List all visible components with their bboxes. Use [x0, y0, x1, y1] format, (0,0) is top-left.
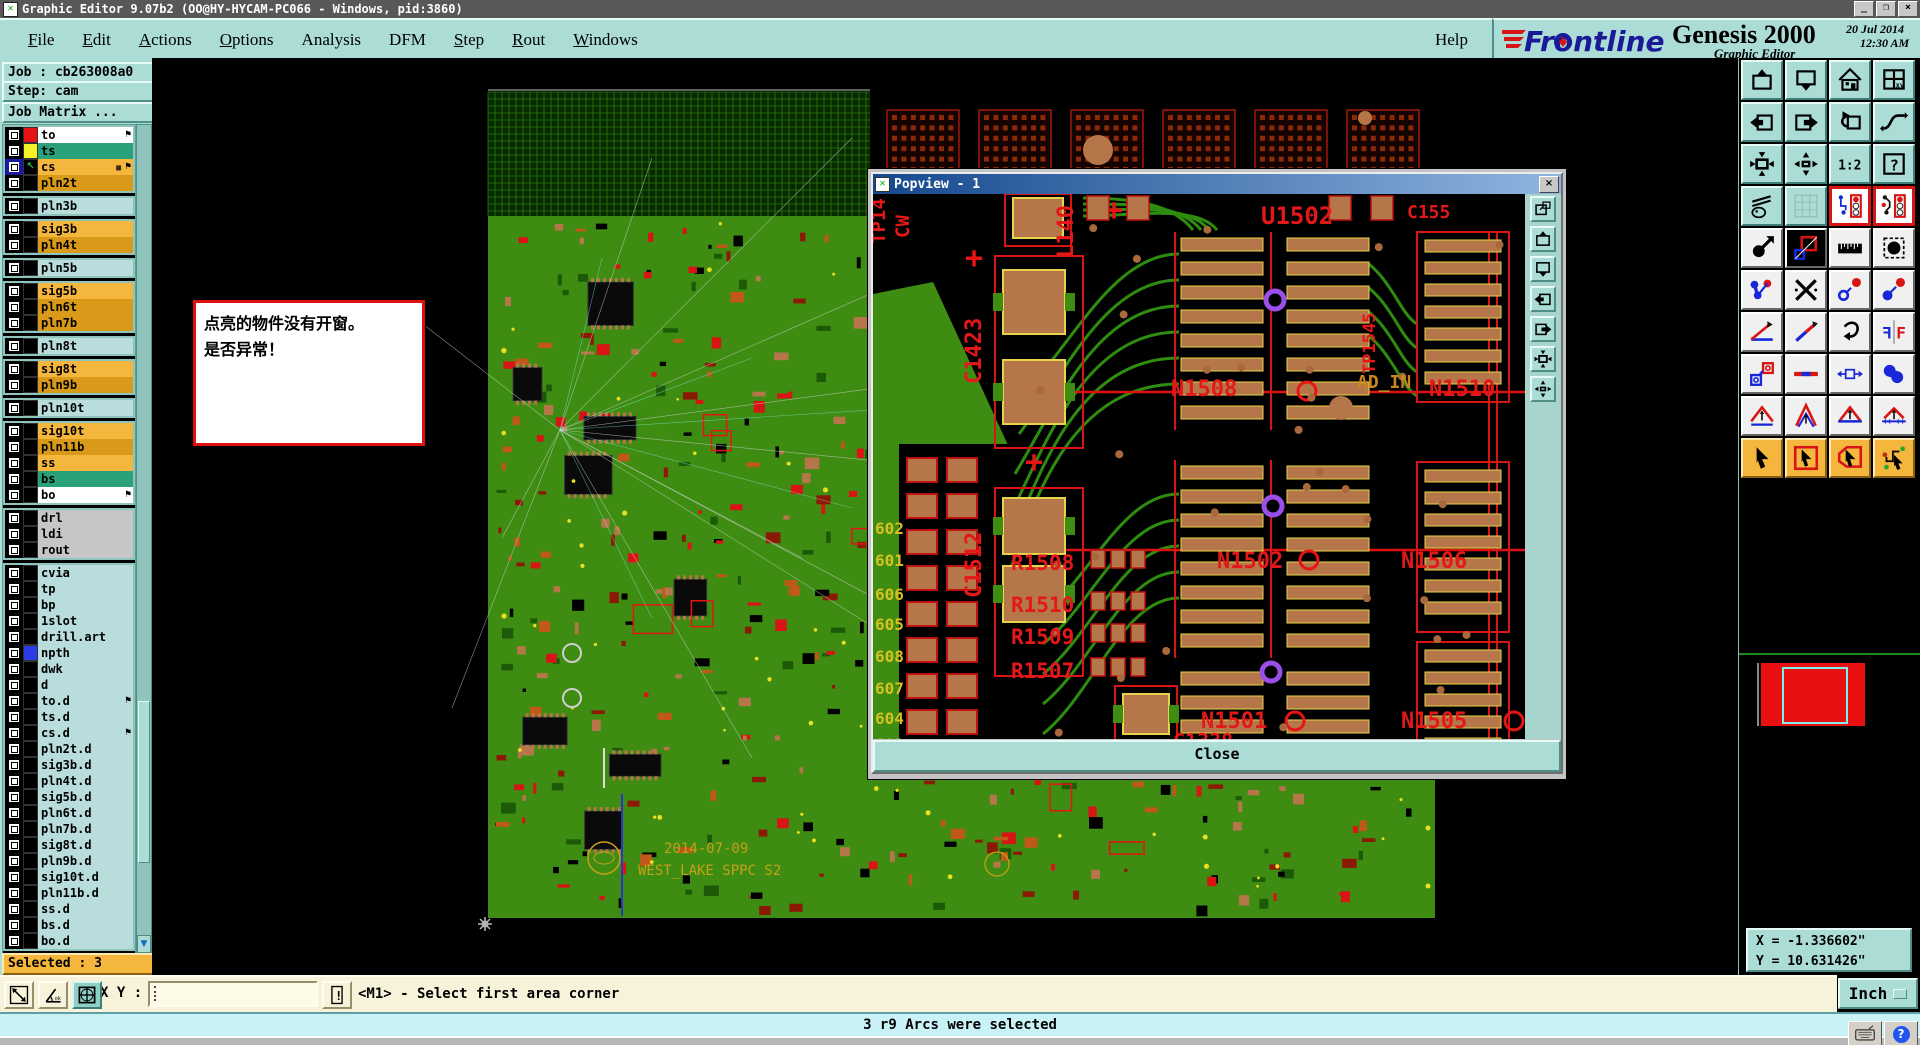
layer-color-swatch[interactable] — [23, 853, 38, 869]
tool-grid-toggle-button[interactable] — [1785, 186, 1827, 226]
xy-input[interactable] — [148, 981, 318, 1007]
layer-checkbox[interactable] — [5, 159, 23, 175]
layer-row-pln11b.d[interactable]: pln11b.d — [5, 885, 133, 901]
layer-row-pln4t[interactable]: pln4t — [5, 237, 133, 253]
layer-row-sig10t[interactable]: sig10t — [5, 423, 133, 439]
layer-row-to.d[interactable]: to.d⚑ — [5, 693, 133, 709]
layer-checkbox[interactable] — [5, 510, 23, 526]
cursor-coordinates: X = -1.336602" Y = 10.631426" — [1746, 928, 1912, 972]
layer-checkbox[interactable] — [5, 143, 23, 159]
layer-color-swatch[interactable] — [23, 127, 38, 143]
layer-name[interactable]: cvia — [38, 565, 133, 581]
layer-checkbox[interactable] — [5, 741, 23, 757]
popview-close-button[interactable]: Close — [873, 740, 1561, 772]
layer-name[interactable]: pln2t — [38, 175, 133, 191]
layer-color-swatch[interactable] — [23, 725, 38, 741]
layer-name[interactable]: bs — [38, 471, 133, 487]
restore-button[interactable]: ❐ — [1876, 1, 1896, 17]
measure-diag-button[interactable] — [4, 981, 34, 1009]
layer-color-swatch[interactable] — [23, 789, 38, 805]
layer-name[interactable]: drl — [38, 510, 133, 526]
layer-name[interactable]: pln7b.d — [38, 821, 133, 837]
layer-name[interactable]: sig3b — [38, 221, 133, 237]
layer-color-swatch[interactable] — [23, 757, 38, 773]
layer-list: to⚑ts↖cs▦⚑pln2tpln3bsig3bpln4tpln5bsig5b… — [2, 124, 136, 954]
layer-row-sig10t.d[interactable]: sig10t.d — [5, 869, 133, 885]
layer-color-swatch[interactable] — [23, 869, 38, 885]
tool-select-polygon-button[interactable] — [1829, 438, 1871, 478]
popview-window[interactable]: ✕ Popview - 1 × +++TP14CWC1423L140U1502C… — [867, 168, 1567, 780]
layer-color-swatch[interactable] — [23, 821, 38, 837]
layer-name[interactable]: pln10t — [38, 400, 133, 416]
popview-tool-zoom-out-fit-button[interactable] — [1530, 376, 1556, 402]
layer-name[interactable]: npth — [38, 645, 133, 661]
layer-checkbox[interactable] — [5, 581, 23, 597]
tool-join-shapes-button[interactable] — [1873, 354, 1915, 394]
layer-name[interactable]: bo⚑ — [38, 487, 133, 503]
measure-ang2-icon: ok — [42, 984, 64, 1006]
right-panel: xy1:2?FF X = -1.336602" Y = 10.631426" I… — [1738, 58, 1920, 1045]
layer-checkbox[interactable] — [5, 455, 23, 471]
tool-measure-ruler-button[interactable] — [1829, 228, 1871, 268]
layer-checkbox[interactable] — [5, 885, 23, 901]
tool-scale-1-2-button[interactable]: 1:2 — [1829, 144, 1871, 184]
layer-color-swatch[interactable] — [23, 885, 38, 901]
layer-color-swatch[interactable] — [23, 933, 38, 949]
menu-options[interactable]: Options — [220, 30, 274, 50]
tool-tools-setup-button[interactable] — [1741, 186, 1783, 226]
popview-tool-popout-button[interactable] — [1530, 196, 1556, 222]
layer-row-sig8t[interactable]: sig8t — [5, 361, 133, 377]
layer-name[interactable]: pln7b — [38, 315, 133, 331]
layer-name[interactable]: bp — [38, 597, 133, 613]
tool-move-layers-button[interactable] — [1785, 228, 1827, 268]
layer-row-to[interactable]: to⚑ — [5, 127, 133, 143]
arc-2-icon — [1792, 402, 1820, 430]
layer-row-bs.d[interactable]: bs.d — [5, 917, 133, 933]
tool-swap-small-button[interactable] — [1829, 270, 1871, 310]
menu-windows[interactable]: Windows — [573, 30, 638, 50]
tool-select-net-button[interactable] — [1873, 438, 1915, 478]
coord-y: Y = 10.631426" — [1756, 952, 1910, 972]
layer-checkbox[interactable] — [5, 237, 23, 253]
layer-checkbox[interactable] — [5, 917, 23, 933]
layer-color-swatch[interactable] — [23, 805, 38, 821]
layer-color-swatch[interactable] — [23, 510, 38, 526]
job-matrix-button[interactable]: Job Matrix ... — [2, 102, 158, 123]
layer-color-swatch[interactable] — [23, 455, 38, 471]
layer-row-ldi[interactable]: ldi — [5, 526, 133, 542]
layer-name[interactable]: drill.art — [38, 629, 133, 645]
layer-color-swatch[interactable] — [23, 237, 38, 253]
layer-checkbox[interactable] — [5, 127, 23, 143]
layer-row-cs[interactable]: ↖cs▦⚑ — [5, 159, 133, 175]
layer-row-ts.d[interactable]: ts.d — [5, 709, 133, 725]
layer-checkbox[interactable] — [5, 693, 23, 709]
layer-checkbox[interactable] — [5, 709, 23, 725]
layer-color-swatch[interactable]: ↖ — [23, 159, 38, 175]
layer-color-swatch[interactable] — [23, 773, 38, 789]
tool-arc-1-button[interactable] — [1741, 396, 1783, 436]
tool-select-cursor-button[interactable] — [1741, 438, 1783, 478]
popview-ref-label: U1502 — [1261, 202, 1333, 230]
layer-scrollbar[interactable]: ▼ — [136, 124, 152, 954]
layer-name[interactable]: ldi — [38, 526, 133, 542]
layer-checkbox[interactable] — [5, 565, 23, 581]
tool-arc-3-button[interactable] — [1829, 396, 1871, 436]
layer-name[interactable]: pln8t — [38, 338, 133, 354]
layer-name[interactable]: sig3b.d — [38, 757, 133, 773]
measure-ang2-button[interactable]: ok — [38, 981, 68, 1009]
menu-analysis[interactable]: Analysis — [302, 30, 362, 50]
tool-highlight-b-button[interactable] — [1873, 186, 1915, 226]
layer-color-swatch[interactable] — [23, 221, 38, 237]
copy-select-icon — [1748, 234, 1776, 262]
menu-rout[interactable]: Rout — [512, 30, 545, 50]
layer-row-pln2t[interactable]: pln2t — [5, 175, 133, 191]
layer-checkbox[interactable] — [5, 661, 23, 677]
popview-tool-view-up-button[interactable] — [1530, 226, 1556, 252]
layer-row-bo.d[interactable]: bo.d — [5, 933, 133, 949]
layer-checkbox[interactable] — [5, 725, 23, 741]
layer-row-d[interactable]: d — [5, 677, 133, 693]
layer-row-pln6t.d[interactable]: pln6t.d — [5, 805, 133, 821]
layer-name[interactable]: pln6t.d — [38, 805, 133, 821]
layer-row-pln7b[interactable]: pln7b — [5, 315, 133, 331]
layer-name[interactable]: pln3b — [38, 198, 133, 214]
layer-name[interactable]: ts.d — [38, 709, 133, 725]
layer-row-pln6t[interactable]: pln6t — [5, 299, 133, 315]
tool-select-pad-button[interactable] — [1873, 228, 1915, 268]
tool-slant-line-button[interactable] — [1785, 312, 1827, 352]
layer-checkbox[interactable] — [5, 260, 23, 276]
grid-win-button[interactable] — [72, 981, 102, 1009]
layer-checkbox[interactable] — [5, 221, 23, 237]
layer-flag-icon: ⚑ — [125, 725, 131, 741]
tool-angle-measure-button[interactable] — [1741, 312, 1783, 352]
layer-row-bp[interactable]: bp — [5, 597, 133, 613]
view-down-icon — [1792, 66, 1820, 94]
layer-color-swatch[interactable] — [23, 709, 38, 725]
layer-checkbox[interactable] — [5, 283, 23, 299]
layer-name[interactable]: sig8t.d — [38, 837, 133, 853]
popview-tool-pan-into-left-button[interactable] — [1530, 286, 1556, 312]
tool-view-up-button[interactable] — [1741, 60, 1783, 100]
layer-color-swatch[interactable] — [23, 423, 38, 439]
layer-color-swatch[interactable] — [23, 471, 38, 487]
tool-stretch-button[interactable] — [1829, 354, 1871, 394]
layer-row-pln10t[interactable]: pln10t — [5, 400, 133, 416]
layer-checkbox[interactable] — [5, 837, 23, 853]
menu-file[interactable]: File — [28, 30, 54, 50]
layer-color-swatch[interactable] — [23, 175, 38, 191]
layer-row-pln5b[interactable]: pln5b — [5, 260, 133, 276]
layer-checkbox[interactable] — [5, 377, 23, 393]
layer-name[interactable]: sig5b — [38, 283, 133, 299]
layer-checkbox[interactable] — [5, 773, 23, 789]
tool-delete-button[interactable] — [1785, 270, 1827, 310]
layer-group: sig3bpln4t — [3, 219, 135, 255]
tool-previous-view-button[interactable] — [1829, 102, 1871, 142]
layer-row-pln2t.d[interactable]: pln2t.d — [5, 741, 133, 757]
keyboard-tray-icon[interactable] — [1848, 1021, 1882, 1045]
layer-checkbox[interactable] — [5, 613, 23, 629]
layer-checkbox[interactable] — [5, 338, 23, 354]
layer-row-npth[interactable]: npth — [5, 645, 133, 661]
mirror-icon: FF — [1880, 318, 1908, 346]
layer-row-drill.art[interactable]: drill.art — [5, 629, 133, 645]
layer-row-tp[interactable]: tp — [5, 581, 133, 597]
layer-row-drl[interactable]: drl — [5, 510, 133, 526]
alert-button[interactable]: ! — [322, 981, 352, 1009]
popview-ref-label: R1507 — [1011, 659, 1074, 683]
layer-checkbox[interactable] — [5, 645, 23, 661]
popview-tool-pan-out-right-button[interactable] — [1530, 316, 1556, 342]
layer-checkbox[interactable] — [5, 487, 23, 503]
delete-icon — [1792, 276, 1820, 304]
layer-name[interactable]: tp — [38, 581, 133, 597]
layer-name[interactable]: ss.d — [38, 901, 133, 917]
layer-name[interactable]: sig10t.d — [38, 869, 133, 885]
layer-checkbox[interactable] — [5, 299, 23, 315]
layer-row-sig5b[interactable]: sig5b — [5, 283, 133, 299]
layer-name[interactable]: to.d⚑ — [38, 693, 133, 709]
layer-checkbox[interactable] — [5, 629, 23, 645]
layer-color-swatch[interactable] — [23, 198, 38, 214]
layer-name[interactable]: bo.d — [38, 933, 133, 949]
layer-name[interactable]: cs▦⚑ — [38, 159, 133, 175]
layer-color-swatch[interactable] — [23, 597, 38, 613]
layer-name[interactable]: pln6t — [38, 299, 133, 315]
layer-row-1slot[interactable]: 1slot — [5, 613, 133, 629]
layer-color-swatch[interactable] — [23, 143, 38, 159]
layer-name[interactable]: d — [38, 677, 133, 693]
layer-group: pln3b — [3, 196, 135, 216]
menu-help[interactable]: Help — [1435, 30, 1468, 50]
layer-name[interactable]: pln5b — [38, 260, 133, 276]
svg-text:!: ! — [335, 988, 343, 1003]
tool-highlight-a-button[interactable] — [1829, 186, 1871, 226]
tool-split-xy-button[interactable]: xy — [1873, 60, 1915, 100]
popview-ref-label: 608 — [875, 647, 904, 666]
tool-pan-into-left-button[interactable] — [1741, 102, 1783, 142]
menu-actions[interactable]: Actions — [139, 30, 192, 50]
menu-bar: FileEditActionsOptionsAnalysisDFMStepRou… — [0, 18, 1492, 62]
view-down-icon — [1533, 259, 1553, 279]
pan-out-right-icon — [1533, 319, 1553, 339]
minimize-button[interactable]: _ — [1854, 1, 1874, 17]
layer-row-ss.d[interactable]: ss.d — [5, 901, 133, 917]
layer-row-sig5b.d[interactable]: sig5b.d — [5, 789, 133, 805]
layer-color-swatch[interactable] — [23, 361, 38, 377]
layer-name[interactable]: sig8t — [38, 361, 133, 377]
layer-row-pln3b[interactable]: pln3b — [5, 198, 133, 214]
select-polygon-icon — [1836, 444, 1864, 472]
layer-checkbox[interactable] — [5, 757, 23, 773]
menu-edit[interactable]: Edit — [82, 30, 110, 50]
layer-row-bs[interactable]: bs — [5, 471, 133, 487]
scrollbar-thumb[interactable] — [138, 701, 150, 863]
layer-checkbox[interactable] — [5, 597, 23, 613]
help-tray-icon[interactable]: ? — [1884, 1021, 1918, 1045]
layer-row-pln11b[interactable]: pln11b — [5, 439, 133, 455]
tool-copy-pad-button[interactable] — [1741, 354, 1783, 394]
layer-name[interactable]: bs.d — [38, 917, 133, 933]
tool-home-view-button[interactable] — [1829, 60, 1871, 100]
layer-color-swatch[interactable] — [23, 837, 38, 853]
brand-panel: Frontline Genesis 2000 20 Jul 2014 12:30… — [1492, 18, 1920, 62]
layer-color-swatch[interactable] — [23, 677, 38, 693]
layer-row-pln9b.d[interactable]: pln9b.d — [5, 853, 133, 869]
tool-swap-large-button[interactable] — [1873, 270, 1915, 310]
layer-row-pln9b[interactable]: pln9b — [5, 377, 133, 393]
layer-color-swatch[interactable] — [23, 565, 38, 581]
graphic-editor-window: ✕ Graphic Editor 9.07b2 (OO@HY-HYCAM-PC0… — [0, 0, 1920, 1045]
layer-name[interactable]: sig5b.d — [38, 789, 133, 805]
tool-view-down-button[interactable] — [1785, 60, 1827, 100]
layer-name[interactable]: pln4t — [38, 237, 133, 253]
layer-color-swatch[interactable] — [23, 613, 38, 629]
popview-ref-label: N1510 — [1429, 377, 1495, 402]
warning-line1: 点亮的物件没有开窗。 — [204, 311, 414, 337]
layer-name[interactable]: pln2t.d — [38, 741, 133, 757]
layer-checkbox[interactable] — [5, 400, 23, 416]
units-dropdown[interactable]: Inch — [1838, 978, 1918, 1009]
layer-name[interactable]: ts — [38, 143, 133, 159]
tool-reroute-button[interactable] — [1829, 312, 1871, 352]
view-up-icon — [1748, 66, 1776, 94]
popview-ref-label: TP1545 — [1360, 313, 1380, 374]
layer-name[interactable]: to⚑ — [38, 127, 133, 143]
layer-checkbox[interactable] — [5, 439, 23, 455]
layer-name[interactable]: pln11b.d — [38, 885, 133, 901]
layer-color-swatch[interactable] — [23, 283, 38, 299]
layer-row-cs.d[interactable]: cs.d⚑ — [5, 725, 133, 741]
overview-viewport-box[interactable] — [1782, 667, 1848, 724]
layer-checkbox[interactable] — [5, 869, 23, 885]
layer-checkbox[interactable] — [5, 677, 23, 693]
layer-color-swatch[interactable] — [23, 338, 38, 354]
layer-name[interactable]: pln4t.d — [38, 773, 133, 789]
layer-checkbox[interactable] — [5, 901, 23, 917]
layer-checkbox[interactable] — [5, 805, 23, 821]
layer-checkbox[interactable] — [5, 471, 23, 487]
layer-checkbox[interactable] — [5, 789, 23, 805]
layer-color-swatch[interactable] — [23, 400, 38, 416]
title-bar[interactable]: ✕ Graphic Editor 9.07b2 (OO@HY-HYCAM-PC0… — [0, 0, 1920, 18]
layer-row-sig3b.d[interactable]: sig3b.d — [5, 757, 133, 773]
layer-color-swatch[interactable] — [23, 299, 38, 315]
tool-copy-select-button[interactable] — [1741, 228, 1783, 268]
layer-checkbox[interactable] — [5, 821, 23, 837]
tool-zoom-fit-button[interactable] — [1741, 144, 1783, 184]
layer-name[interactable]: pln9b.d — [38, 853, 133, 869]
sidebar: Job : cb263008a0 Step: cam Job Matrix ..… — [0, 58, 152, 975]
layer-checkbox[interactable] — [5, 198, 23, 214]
popview-pcb-view[interactable]: +++TP14CWC1423L140U1502C155TP1545AD_INN1… — [873, 194, 1525, 739]
layer-row-ss[interactable]: ss — [5, 455, 133, 471]
layer-name[interactable]: ss — [38, 455, 133, 471]
popview-title-bar[interactable]: ✕ Popview - 1 × — [873, 174, 1561, 194]
layer-row-ts[interactable]: ts — [5, 143, 133, 159]
overview-divider — [1739, 653, 1920, 655]
layer-color-swatch[interactable] — [23, 487, 38, 503]
popview-tool-view-down-button[interactable] — [1530, 256, 1556, 282]
scrollbar-down-arrow[interactable]: ▼ — [137, 935, 151, 953]
menu-step[interactable]: Step — [454, 30, 484, 50]
layer-color-swatch[interactable] — [23, 315, 38, 331]
layer-name[interactable]: sig10t — [38, 423, 133, 439]
tool-query-button[interactable]: ? — [1873, 144, 1915, 184]
menu-dfm[interactable]: DFM — [389, 30, 426, 50]
layer-row-cvia[interactable]: cvia — [5, 565, 133, 581]
layer-group: drlldirout — [3, 508, 135, 560]
layer-color-swatch[interactable] — [23, 526, 38, 542]
popview-close-x[interactable]: × — [1539, 176, 1559, 193]
layer-color-swatch[interactable] — [23, 542, 38, 558]
layer-color-swatch[interactable] — [23, 693, 38, 709]
layer-color-swatch[interactable] — [23, 661, 38, 677]
layer-row-pln7b.d[interactable]: pln7b.d — [5, 821, 133, 837]
popview-ref-label: L140 — [1054, 205, 1079, 258]
layer-color-swatch[interactable] — [23, 901, 38, 917]
layer-row-pln8t[interactable]: pln8t — [5, 338, 133, 354]
popview-ref-label: R1509 — [1011, 625, 1074, 649]
tool-pan-out-right-button[interactable] — [1785, 102, 1827, 142]
layer-color-swatch[interactable] — [23, 377, 38, 393]
layer-name[interactable]: pln9b — [38, 377, 133, 393]
layer-checkbox[interactable] — [5, 853, 23, 869]
popview-tool-zoom-fit-button[interactable] — [1530, 346, 1556, 372]
layer-checkbox[interactable] — [5, 423, 23, 439]
tool-break-line-button[interactable] — [1785, 354, 1827, 394]
layer-checkbox[interactable] — [5, 361, 23, 377]
layer-row-sig3b[interactable]: sig3b — [5, 221, 133, 237]
tool-mirror-button[interactable]: FF — [1873, 312, 1915, 352]
layer-color-swatch[interactable] — [23, 645, 38, 661]
layer-name[interactable]: rout — [38, 542, 133, 558]
layer-name[interactable]: cs.d⚑ — [38, 725, 133, 741]
layer-row-dwk[interactable]: dwk — [5, 661, 133, 677]
layer-name[interactable]: dwk — [38, 661, 133, 677]
layer-row-pln4t.d[interactable]: pln4t.d — [5, 773, 133, 789]
layer-checkbox[interactable] — [5, 315, 23, 331]
layer-color-swatch[interactable] — [23, 260, 38, 276]
layer-color-swatch[interactable] — [23, 629, 38, 645]
tool-zoom-out-fit-button[interactable] — [1785, 144, 1827, 184]
layer-row-bo[interactable]: bo⚑ — [5, 487, 133, 503]
layer-row-rout[interactable]: rout — [5, 542, 133, 558]
layer-checkbox[interactable] — [5, 175, 23, 191]
layer-name[interactable]: 1slot — [38, 613, 133, 629]
layer-color-swatch[interactable] — [23, 439, 38, 455]
tool-chain-select-button[interactable] — [1741, 270, 1783, 310]
tool-serpentine-button[interactable] — [1873, 102, 1915, 142]
layer-checkbox[interactable] — [5, 933, 23, 949]
layer-color-swatch[interactable] — [23, 581, 38, 597]
close-button[interactable]: × — [1898, 1, 1918, 17]
layer-checkbox[interactable] — [5, 526, 23, 542]
select-cursor-icon — [1748, 444, 1776, 472]
layer-row-sig8t.d[interactable]: sig8t.d — [5, 837, 133, 853]
layer-checkbox[interactable] — [5, 542, 23, 558]
tool-arc-2-button[interactable] — [1785, 396, 1827, 436]
tool-select-window-button[interactable] — [1785, 438, 1827, 478]
layer-color-swatch[interactable] — [23, 741, 38, 757]
layer-name[interactable]: pln11b — [38, 439, 133, 455]
tool-arc-4-button[interactable] — [1873, 396, 1915, 436]
layer-color-swatch[interactable] — [23, 917, 38, 933]
